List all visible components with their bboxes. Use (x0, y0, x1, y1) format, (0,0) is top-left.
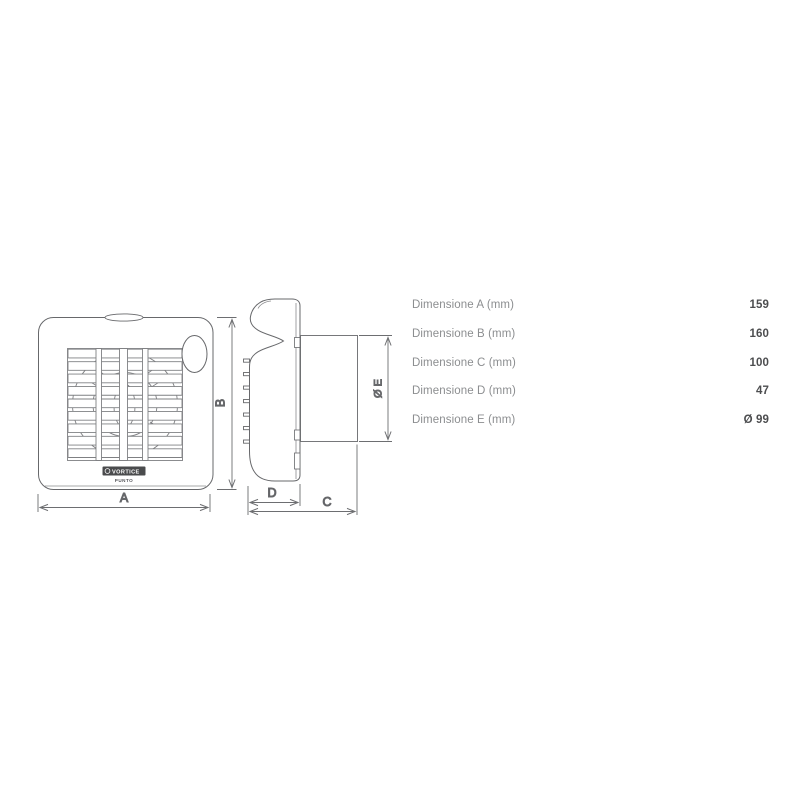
dimension-c-label: C (322, 495, 331, 509)
fan-top-hinge (105, 314, 143, 321)
brand-logo: VORTICE PUNTO (103, 467, 146, 484)
brand-sub-text: PUNTO (115, 478, 134, 483)
dimension-d-label: D (267, 486, 276, 500)
dimension-value: Ø 99 (744, 414, 769, 426)
dimension-row-e: Dimensione E (mm) Ø 99 (412, 406, 769, 435)
dimension-b-label: B (214, 399, 228, 407)
duct-outline (301, 336, 358, 442)
dimension-label: Dimensione D (mm) (412, 385, 516, 397)
dimension-value: 47 (756, 385, 769, 397)
side-body-outline (250, 299, 301, 481)
dimension-label: Dimensione A (mm) (412, 299, 514, 311)
dimension-label: Dimensione E (mm) (412, 414, 515, 426)
dimension-value: 100 (750, 357, 770, 369)
dimension-e-label: Ø E (373, 379, 385, 398)
dimension-row-d: Dimensione D (mm) 47 (412, 377, 769, 406)
fan-knob (182, 336, 207, 373)
dimension-row-c: Dimensione C (mm) 100 (412, 348, 769, 377)
front-view-drawing: VORTICE PUNTO A B (38, 314, 237, 512)
dimension-label: Dimensione B (mm) (412, 328, 515, 340)
dimension-value: 159 (750, 299, 770, 311)
dimension-row-b: Dimensione B (mm) 160 (412, 320, 769, 349)
dimension-label: Dimensione C (mm) (412, 357, 516, 369)
dimensions-table: Dimensione A (mm) 159 Dimensione B (mm) … (412, 291, 769, 434)
side-grille-ribs (244, 359, 250, 443)
dimension-a-label: A (120, 491, 129, 505)
fan-grille (68, 349, 183, 461)
dimension-row-a: Dimensione A (mm) 159 (412, 291, 769, 320)
brand-logo-text: VORTICE (112, 470, 140, 476)
product-dimensions-panel: VORTICE PUNTO A B (0, 0, 800, 800)
side-view-drawing: D C Ø E (244, 299, 393, 515)
dimension-value: 160 (750, 328, 770, 340)
